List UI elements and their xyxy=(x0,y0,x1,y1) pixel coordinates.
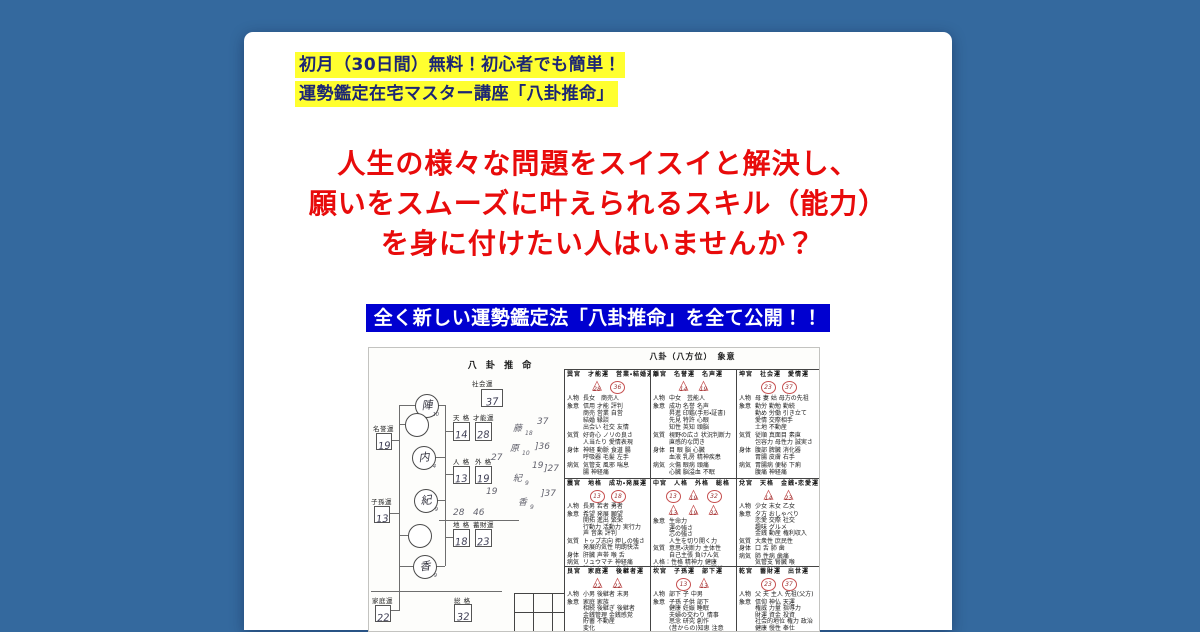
palace-cell-艮宮: 艮宮 家庭運 後継者運△22△22人物小男 後継者 末男象意家庭 家族 相続 後… xyxy=(565,567,650,632)
entry-text: 少女 末女 乙女 xyxy=(755,504,795,511)
circle-mark: 23 xyxy=(761,578,776,591)
entry-label: 象意 xyxy=(739,403,755,431)
entry-label: 病気 xyxy=(653,462,669,476)
hakke-table: 巽宮 才能運 営業・結婚運△2836人物長女 商売人象意信用 才能 評判 商売 … xyxy=(564,369,820,632)
diagram-line xyxy=(399,405,400,567)
cell-entry: 病気気管支 風邪 喘息 腸 神経痛 xyxy=(567,462,648,476)
entry-text: 成功 名誉 名声 昇進 印鑑(手形・証書) 先見 特許 心眼 知性 英知 頭脳 xyxy=(669,403,726,431)
cell-entry: 人物部下 子 中男 xyxy=(653,592,734,599)
name-circle: 内4 xyxy=(412,446,436,470)
cell-entry: 人物少女 末女 乙女 xyxy=(739,504,818,511)
cell-entry: 象意成功 名誉 名声 昇進 印鑑(手形・証書) 先見 特許 心眼 知性 英知 頭… xyxy=(653,403,734,431)
cell-entry: 人物長男 若者 勇者 xyxy=(567,504,648,511)
palace-cell-離宮: 離宮 名誉運 名声運△14△19人物中女 芸能人象意成功 名誉 名声 昇進 印鑑… xyxy=(650,370,736,478)
entry-label: 人物 xyxy=(739,504,755,511)
score-value: 22 xyxy=(376,611,390,627)
entry-label: 気質 xyxy=(567,539,583,552)
grid-cell xyxy=(515,594,534,613)
entry-label: 病気 xyxy=(739,554,755,567)
entry-text: 中女 芸能人 xyxy=(669,395,705,402)
table-title: 八卦（八方位） 象意 xyxy=(564,351,820,362)
score-label: 人 格 xyxy=(453,456,470,466)
score-value: 23 xyxy=(477,535,491,552)
handwritten-note: 19 xyxy=(486,488,497,497)
entry-text: 信用 才能 評判 商売 営業 自営 結婚 縁談 出会い 社交 友情 xyxy=(583,403,629,431)
score-label: 外 格 xyxy=(475,456,492,466)
entry-text: 勤労 勤勉 勤続 勤め 労働 引き立て 愛情 交際相手 土地 不動産 xyxy=(755,403,807,431)
triangle-mark: △19 xyxy=(697,379,711,393)
palace-header: 乾宮 蓄財運 出世運 xyxy=(739,568,818,576)
name-circle: 香9 xyxy=(413,555,437,579)
stroke-count: 10 xyxy=(433,412,439,418)
score-box: 18 xyxy=(453,529,470,547)
cell-entry: 象意家庭 家族 相続 後継ぎ 後継者 金銭管理 金銭感覚 貯蓄 不動産 変化 xyxy=(567,600,648,632)
score-box: 22 xyxy=(375,605,391,622)
entry-text: 子孫 子供 部下 健康 妊娠 睡眠 夫婦の交わり 情事 思念 研究 創作 (昔か… xyxy=(669,600,724,632)
palace-header: 震宮 地格 成功・発展運 xyxy=(567,480,648,488)
entry-label: 象意 xyxy=(567,512,583,538)
score-value: 37 xyxy=(485,395,499,412)
entry-label: 人物 xyxy=(567,504,583,511)
headline: 人生の様々な問題をスイスイと解決し、 願いをスムーズに叶えられるスキル（能力） … xyxy=(244,144,952,264)
entry-text: トップ志向 押しの強さ 発展的気性 明朗快活 xyxy=(583,539,645,552)
score-marks: 13△13 xyxy=(653,576,734,591)
entry-text: 長男 若者 勇者 xyxy=(583,504,623,511)
entry-label: 人物 xyxy=(567,395,583,402)
entry-label: 気質 xyxy=(567,432,583,446)
score-label: 家庭運 xyxy=(372,595,393,605)
handwritten-note: 9 xyxy=(525,481,529,487)
score-marks: 2337 xyxy=(739,379,818,394)
cell-entry: 身体口 舌 肺 歯 xyxy=(739,546,818,553)
cell-entry: 人物小男 後継者 末男 xyxy=(567,592,648,599)
stroke-count: 4 xyxy=(433,464,436,470)
headline-line-3: を身に付けたい人はいませんか？ xyxy=(244,224,952,264)
stroke-count: 9 xyxy=(435,507,438,513)
cell-entry: 身体腹部 脾臓 消化器 胃腸 皮膚 右手 xyxy=(739,447,818,461)
entry-label: 気質 xyxy=(653,546,669,559)
cell-entry: 病気肺 性病 歯痛 気管支 腎臓 喉 xyxy=(739,554,818,567)
handwritten-note: ]27 xyxy=(544,465,559,474)
diagram-line xyxy=(399,535,408,536)
entry-label: 人物 xyxy=(567,592,583,599)
entry-text: 希望 発展 願望 開拓 進出 繁栄 行動力 活動力 実行力 声 音楽 評判 xyxy=(583,512,641,538)
triangle-mark: △14 xyxy=(677,379,691,393)
palace-header: 坤宮 社会運 愛情運 xyxy=(739,371,818,379)
diagram-line xyxy=(445,474,453,475)
entry-label: 身体 xyxy=(567,447,583,461)
score-value: 13 xyxy=(375,512,389,528)
handwritten-note: 18 xyxy=(525,431,533,437)
entry-label: 象意 xyxy=(567,403,583,431)
entry-text: 従順 真面目 素直 包容力 母性力 誠実さ xyxy=(755,432,813,446)
cell-entry: 象意生命力 運の強さ 芯の強さ 人生を切り開く力 xyxy=(653,519,734,545)
entry-text: 夕方 おしゃべり 恋愛 交際 社交 趣味 グルメ 金銭 動産 権利収入 xyxy=(755,512,807,538)
score-value: 13 xyxy=(455,472,469,489)
diagram-line xyxy=(445,405,446,566)
circle-mark: 13 xyxy=(676,578,691,591)
name-circle xyxy=(405,413,429,437)
entry-label: 象意 xyxy=(739,512,755,538)
score-box: 14 xyxy=(453,422,470,441)
entry-text: 目 眼 脳 心臓 血液 乳房 精神疾患 xyxy=(669,447,721,461)
table-row: 巽宮 才能運 営業・結婚運△2836人物長女 商売人象意信用 才能 評判 商売 … xyxy=(565,370,820,478)
triangle-mark: △28 xyxy=(590,379,604,393)
cell-entry: 人物長女 商売人 xyxy=(567,395,648,402)
handwritten-note: 9 xyxy=(530,505,534,511)
entry-text: 長女 商売人 xyxy=(583,395,619,402)
entry-label: 病気 xyxy=(567,462,583,476)
palace-cell-坤宮: 坤宮 社会運 愛情運2337人物母 妻 姑 母方の先祖象意勤労 勤勉 勤続 勤め… xyxy=(736,370,820,478)
entry-label: 人物 xyxy=(653,592,669,599)
handwritten-note: 紀 xyxy=(513,475,522,484)
page-background: { "canvas": {"bg": "#34699e", "card_bg":… xyxy=(0,0,1200,630)
palace-header: 兌宮 天格 金銭・恋愛運 xyxy=(739,480,818,488)
cell-entry: 象意勤労 勤勉 勤続 勤め 労働 引き立て 愛情 交際相手 土地 不動産 xyxy=(739,403,818,431)
cell-entry: 病気火傷 眼病 頭痛 心臓 脳溢血 不眠 xyxy=(653,462,734,476)
palace-header: 離宮 名誉運 名声運 xyxy=(653,371,734,379)
score-label: 名誉運 xyxy=(373,423,394,433)
score-label: 子孫運 xyxy=(371,496,392,506)
entry-text: 部下 子 中男 xyxy=(669,592,703,599)
entry-label: 身体 xyxy=(739,546,755,553)
diagram-title: 八 卦 推 命 xyxy=(441,358,561,371)
cell-entry: 気質従順 真面目 素直 包容力 母性力 誠実さ xyxy=(739,432,818,446)
score-value: 28 xyxy=(477,427,491,445)
cell-entry: 人物中女 芸能人 xyxy=(653,395,734,402)
cell-entry: 象意子孫 子供 部下 健康 妊娠 睡眠 夫婦の交わり 情事 思念 研究 創作 (… xyxy=(653,600,734,632)
entry-label: 病気 xyxy=(739,462,755,476)
handwritten-note: 28 xyxy=(453,509,464,518)
triangle-mark: △13 xyxy=(667,503,681,517)
score-marks: △22△22 xyxy=(567,576,648,591)
entry-label: 象意 xyxy=(653,519,669,545)
handwritten-note: 27 xyxy=(491,454,502,463)
diagram-line xyxy=(399,566,413,567)
name-circle: 紀9 xyxy=(414,489,438,513)
palace-header: 坎宮 子孫運 部下運 xyxy=(653,568,734,576)
score-value: 32 xyxy=(456,610,470,627)
entry-text: 好奇心 ノリの良さ 人当たり 愛情表現 xyxy=(583,432,633,446)
circle-mark: 36 xyxy=(610,381,625,394)
handwritten-note: 原 xyxy=(510,445,519,454)
cell-entry: 病気胃腸病 便秘 下痢 腹痛 神経痛 xyxy=(739,462,818,476)
circle-mark: 23 xyxy=(761,381,776,394)
entry-text: 肺 性病 歯痛 気管支 腎臓 喉 xyxy=(755,554,795,567)
score-value: 18 xyxy=(455,535,469,552)
score-box: 19 xyxy=(475,466,492,484)
entry-label: 象意 xyxy=(653,600,669,632)
diagram-line xyxy=(445,431,453,432)
handwritten-note: 19 xyxy=(532,462,543,471)
score-box: 23 xyxy=(475,529,492,547)
promo-badge: 初月（30日間）無料！初心者でも簡単！ 運勢鑑定在宅マスター講座「八卦推命」 xyxy=(295,52,625,110)
cell-entry: 人物父 夫 主人 先祖(父方) xyxy=(739,592,818,599)
stroke-count: 9 xyxy=(434,573,437,579)
cell-entry: 象意信仰 神仏 天運 権威 力量 指導力 財運 資金 投資 社会的地位 権力 政… xyxy=(739,600,818,632)
entry-text: 神経 動脈 食道 腸 呼吸器 毛髪 左手 xyxy=(583,447,631,461)
entry-label: 人物 xyxy=(653,395,669,402)
entry-text: 視野の広さ 状況判断力 直感的な閃き xyxy=(669,432,731,446)
cell-entry: 気質好奇心 ノリの良さ 人当たり 愛情表現 xyxy=(567,432,648,446)
highlight-banner-text: 全く新しい運勢鑑定法「八卦推命」を全て公開！！ xyxy=(366,304,831,332)
entry-text: 家庭 家族 相続 後継ぎ 後継者 金銭管理 金銭感覚 貯蓄 不動産 変化 xyxy=(583,600,635,632)
score-box: 13 xyxy=(453,466,470,484)
circle-mark: 18 xyxy=(611,490,626,503)
grid-cell xyxy=(534,613,553,632)
cell-entry: 身体神経 動脈 食道 腸 呼吸器 毛髪 左手 xyxy=(567,447,648,461)
palace-cell-乾宮: 乾宮 蓄財運 出世運2337人物父 夫 主人 先祖(父方)象意信仰 神仏 天運 … xyxy=(736,567,820,632)
entry-text: 気管支 風邪 喘息 腸 神経痛 xyxy=(583,462,629,476)
triangle-mark: △19 xyxy=(687,488,701,502)
entry-label: 象意 xyxy=(567,600,583,632)
diagram-line xyxy=(399,566,400,611)
score-value: 19 xyxy=(477,472,491,489)
triangle-mark: △32 xyxy=(707,503,721,517)
cell-entry: 病気リュウマチ 神経痛 脱毛 高血圧 肝臓 xyxy=(567,560,648,566)
handwritten-note: 藤 xyxy=(513,425,522,434)
diagram-line xyxy=(371,591,502,592)
score-marks: 13△1932△13△19△32 xyxy=(663,488,725,518)
highlight-banner: 全く新しい運勢鑑定法「八卦推命」を全て公開！！ xyxy=(244,304,952,332)
entry-label: 身体 xyxy=(653,447,669,461)
circle-mark: 37 xyxy=(782,381,797,394)
entry-label: 象意 xyxy=(739,600,755,632)
cell-entry: 人物母 妻 姑 母方の先祖 xyxy=(739,395,818,402)
score-marks: 1318 xyxy=(567,488,648,503)
table-row: 震宮 地格 成功・発展運1318人物長男 若者 勇者象意希望 発展 願望 開拓 … xyxy=(565,478,820,566)
handwritten-note: 香 xyxy=(518,499,527,508)
palace-cell-中宮: 中宮 人格 外格 総格13△1932△13△19△32象意生命力 運の強さ 芯の… xyxy=(650,479,736,566)
entry-text: 腹部 脾臓 消化器 胃腸 皮膚 右手 xyxy=(755,447,801,461)
diagram-line xyxy=(435,457,445,458)
entry-label: 人物 xyxy=(739,592,755,599)
score-marks: △14△19 xyxy=(653,379,734,394)
grid-cell xyxy=(515,613,534,632)
entry-text: 父 夫 主人 先祖(父方) xyxy=(755,592,813,599)
palace-cell-震宮: 震宮 地格 成功・発展運1318人物長男 若者 勇者象意希望 発展 願望 開拓 … xyxy=(565,479,650,566)
table-row: 艮宮 家庭運 後継者運△22△22人物小男 後継者 末男象意家庭 家族 相続 後… xyxy=(565,566,820,632)
entry-label: 人物 xyxy=(739,395,755,402)
score-marks: 2337 xyxy=(739,576,818,591)
score-box: 19 xyxy=(376,433,392,450)
chart-scan-image: 八 卦 推 命 社会運37天 格14才能運28名誉運19人 格13外 格19子孫… xyxy=(368,347,820,632)
score-box: 13 xyxy=(374,506,390,523)
circle-mark: 37 xyxy=(782,578,797,591)
entry-label: 病気 xyxy=(567,560,583,566)
diagram-line xyxy=(445,537,453,538)
triangle-mark: △23 xyxy=(782,488,796,502)
handwritten-note: ]37 xyxy=(541,490,556,499)
entry-text: 胃腸病 便秘 下痢 腹痛 神経痛 xyxy=(755,462,801,476)
headline-line-1: 人生の様々な問題をスイスイと解決し、 xyxy=(244,144,952,184)
name-circle xyxy=(408,524,432,548)
headline-line-2: 願いをスムーズに叶えられるスキル（能力） xyxy=(244,184,952,224)
cell-entry: 象意夕方 おしゃべり 恋愛 交際 社交 趣味 グルメ 金銭 動産 権利収入 xyxy=(739,512,818,538)
circle-mark: 13 xyxy=(590,490,605,503)
diagram-line xyxy=(399,405,415,406)
entry-label: 象意 xyxy=(653,403,669,431)
entry-text: 小男 後継者 末男 xyxy=(583,592,629,599)
entry-label: 気質 xyxy=(739,432,755,446)
entry-label: 身体 xyxy=(739,447,755,461)
palace-header: 巽宮 才能運 営業・結婚運 xyxy=(567,371,648,379)
triangle-mark: △14 xyxy=(762,488,776,502)
entry-text: 人格：性格 精神力 健康 外格：外見 印象 対人関係 総格：頑張る力 生命力 xyxy=(653,560,723,566)
cell-entry: 象意希望 発展 願望 開拓 進出 繁栄 行動力 活動力 実行力 声 音楽 評判 xyxy=(567,512,648,538)
score-label: 蓄財運 xyxy=(473,519,494,529)
handwritten-note: 46 xyxy=(473,509,484,518)
handwritten-note: ]36 xyxy=(535,443,550,452)
palace-header: 艮宮 家庭運 後継者運 xyxy=(567,568,648,576)
score-box: 28 xyxy=(475,422,492,441)
score-box: 32 xyxy=(454,604,472,622)
entry-text: 口 舌 肺 歯 xyxy=(755,546,785,553)
cell-entry: 人格：性格 精神力 健康 外格：外見 印象 対人関係 総格：頑張る力 生命力 xyxy=(653,560,734,566)
score-value: 19 xyxy=(377,439,391,455)
triangle-mark: △19 xyxy=(687,503,701,517)
palace-cell-巽宮: 巽宮 才能運 営業・結婚運△2836人物長女 商売人象意信用 才能 評判 商売 … xyxy=(565,370,650,478)
entry-text: 生命力 運の強さ 芯の強さ 人生を切り開く力 xyxy=(669,519,717,545)
grid-cell xyxy=(534,594,553,613)
cell-entry: 気質視野の広さ 状況判断力 直感的な閃き xyxy=(653,432,734,446)
cell-entry: 身体目 眼 脳 心臓 血液 乳房 精神疾患 xyxy=(653,447,734,461)
content-card: 初月（30日間）無料！初心者でも簡単！ 運勢鑑定在宅マスター講座「八卦推命」 人… xyxy=(244,32,952,630)
score-marks: △2836 xyxy=(567,379,648,394)
promo-line-2: 運勢鑑定在宅マスター講座「八卦推命」 xyxy=(295,81,618,107)
cell-entry: 気質意思・決断力 主体性 自己主張 負けん気 xyxy=(653,546,734,559)
handwritten-note: 37 xyxy=(537,418,548,427)
entry-text: 母 妻 姑 母方の先祖 xyxy=(755,395,809,402)
handwritten-note: 10 xyxy=(522,451,530,457)
score-label: 天 格 xyxy=(453,412,470,422)
promo-line-1: 初月（30日間）無料！初心者でも簡単！ xyxy=(295,52,625,78)
cell-entry: 気質トップ志向 押しの強さ 発展的気性 明朗快活 xyxy=(567,539,648,552)
score-label: 才能運 xyxy=(473,412,494,422)
score-label: 社会運 xyxy=(472,378,493,388)
entry-text: 意思・決断力 主体性 自己主張 負けん気 xyxy=(669,546,721,559)
triangle-mark: △13 xyxy=(697,576,711,590)
palace-cell-兌宮: 兌宮 天格 金銭・恋愛運△14△23人物少女 末女 乙女象意夕方 おしゃべり 恋… xyxy=(736,479,820,566)
triangle-mark: △22 xyxy=(611,576,625,590)
triangle-mark: △22 xyxy=(591,576,605,590)
palace-cell-坎宮: 坎宮 子孫運 部下運13△13人物部下 子 中男象意子孫 子供 部下 健康 妊娠… xyxy=(650,567,736,632)
entry-label: 気質 xyxy=(653,432,669,446)
score-value: 14 xyxy=(455,427,469,445)
entry-text: リュウマチ 神経痛 脱毛 高血圧 肝臓 xyxy=(583,560,633,566)
score-marks: △14△23 xyxy=(739,488,818,503)
entry-text: 火傷 眼病 頭痛 心臓 脳溢血 不眠 xyxy=(669,462,715,476)
score-label: 地 格 xyxy=(453,519,470,529)
score-box: 37 xyxy=(481,389,503,407)
cell-entry: 象意信用 才能 評判 商売 営業 自営 結婚 縁談 出会い 社交 友情 xyxy=(567,403,648,431)
entry-text: 信仰 神仏 天運 権威 力量 指導力 財運 資金 投資 社会的地位 権力 政治 … xyxy=(755,600,813,632)
